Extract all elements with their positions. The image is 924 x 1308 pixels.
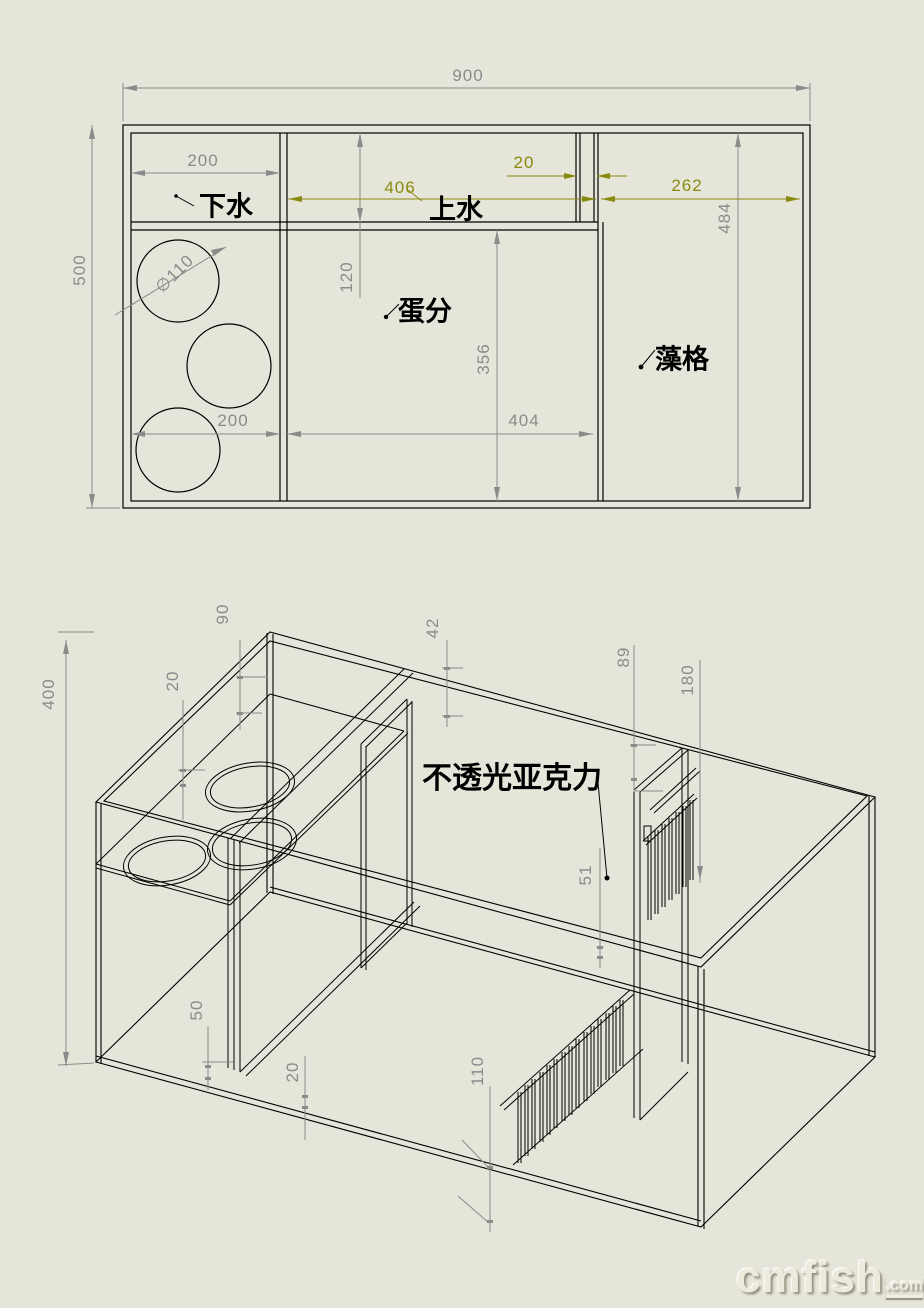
dim-overall-width: 900 — [452, 66, 483, 86]
label-skimmer: 蛋分 — [398, 290, 452, 329]
front-view-structure — [123, 125, 810, 508]
dim-grate-span: 180 — [678, 664, 698, 695]
dim-algae-top-width: 262 — [671, 176, 702, 196]
dim-top-offset: 42 — [423, 618, 443, 639]
watermark: cmfish .com — [736, 1258, 923, 1298]
dim-drain-top-width: 200 — [187, 151, 218, 171]
iso-bottom-comb-grate — [500, 990, 643, 1165]
watermark-brand: cmfish — [736, 1258, 884, 1298]
dim-skimmer-width: 404 — [508, 411, 539, 431]
dim-channel-depth: 120 — [337, 261, 357, 292]
dim-overall-height: 500 — [70, 254, 90, 285]
label-opaque-acrylic: 不透光亚克力 — [422, 753, 602, 797]
iso-gray-dims — [58, 632, 703, 1232]
front-view-olive-dims — [288, 173, 800, 202]
label-algae: 藻格 — [655, 338, 709, 377]
dim-supply-length: 406 — [384, 178, 415, 198]
dim-skimmer-height: 356 — [474, 343, 494, 374]
label-drain: 下水 — [199, 185, 253, 224]
dim-rail-thickness: 20 — [283, 1062, 303, 1083]
dim-gap-width: 20 — [514, 153, 535, 173]
dim-left-gap: 20 — [163, 671, 183, 692]
dim-grate-offset: 51 — [576, 865, 596, 886]
dim-tank-depth: 400 — [39, 678, 59, 709]
drawing-sheet: 900 500 200 120 406 20 262 484 ∅110 200 … — [0, 0, 924, 1308]
dim-algae-height: 484 — [715, 202, 735, 233]
iso-box-outline — [96, 632, 875, 1229]
dim-rail-height: 50 — [187, 1000, 207, 1021]
dim-sock-bottom-width: 200 — [217, 411, 248, 431]
watermark-suffix: .com — [886, 1277, 923, 1298]
front-view-leaders — [115, 194, 655, 369]
dim-weir-height: 90 — [213, 604, 233, 625]
label-supply: 上水 — [429, 188, 483, 227]
iso-upper-comb-grate — [648, 800, 693, 920]
dim-grate-height: 89 — [614, 647, 634, 668]
dim-comb-height: 110 — [468, 1056, 488, 1086]
